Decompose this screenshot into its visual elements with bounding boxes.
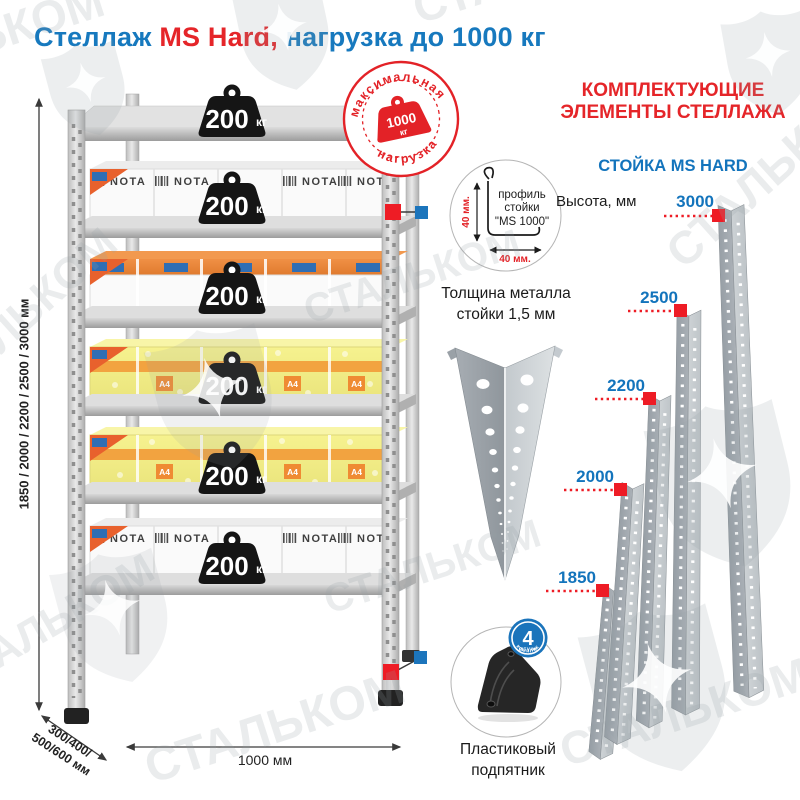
qty-badge: 4 штуки в комплекте — [509, 619, 548, 658]
profile-dim-vertical: 40 мм. — [461, 196, 472, 228]
svg-text:A4: A4 — [287, 467, 298, 477]
components-heading: КОМПЛЕКТУЮЩИЕ ЭЛЕМЕНТЫ СТЕЛЛАЖА — [540, 80, 800, 125]
height-caption: Высота, мм — [556, 193, 636, 210]
box-brand-label: NOTA — [110, 533, 146, 545]
post-height-label-1850: 1850 — [546, 568, 596, 588]
profile-dim-horizontal: 40 мм. — [499, 254, 531, 265]
svg-text:кг: кг — [256, 292, 267, 306]
shelf-illustration: NOTA NOTA NOTA NOTA A4 A4 — [40, 80, 430, 770]
post-height-label-2500: 2500 — [628, 288, 678, 308]
plastic-foot — [378, 690, 403, 706]
post-3000 — [716, 204, 764, 698]
post-height-label-2000: 2000 — [564, 467, 614, 487]
upright-posts — [540, 190, 800, 790]
foot-detail-circle: 4 штуки в комплекте — [448, 612, 573, 742]
box-brand-label: NOTA — [174, 533, 210, 545]
svg-text:A4: A4 — [351, 379, 362, 389]
svg-text:200: 200 — [205, 104, 248, 134]
thickness-label: Толщина металла стойки 1,5 мм — [420, 284, 592, 326]
foot-label: Пластиковый подпятник — [422, 740, 594, 782]
svg-text:A4: A4 — [287, 379, 298, 389]
svg-text:200: 200 — [205, 281, 248, 311]
title-product-name: MS Hard, — [159, 22, 278, 52]
svg-text:кг: кг — [256, 115, 267, 129]
svg-text:кг: кг — [256, 202, 267, 216]
svg-text:200: 200 — [205, 551, 248, 581]
plastic-foot — [402, 650, 420, 662]
post-2500 — [671, 310, 703, 715]
profile-text: профиль — [498, 189, 546, 201]
svg-text:200: 200 — [205, 461, 248, 491]
stand-subheading: СТОЙКА MS HARD — [540, 157, 800, 176]
post-height-label-2200: 2200 — [595, 376, 645, 396]
svg-text:кг: кг — [256, 382, 267, 396]
post-perspective-image — [445, 332, 565, 597]
page-title: Стеллаж MS Hard, нагрузка до 1000 кг — [34, 22, 546, 53]
box-brand-label: NOTA — [174, 176, 210, 188]
shelf-load-badge: 200 кг — [199, 87, 267, 137]
max-load-badge: максимальная нагрузка 1000 кг — [341, 59, 461, 179]
profile-text: "MS 1000" — [495, 216, 549, 228]
box-brand-label: NOTA — [302, 533, 338, 545]
height-dimension-label: 1850 / 2000 / 2200 / 2500 / 3000 мм — [17, 299, 32, 510]
svg-text:200: 200 — [205, 191, 248, 221]
svg-text:кг: кг — [256, 562, 267, 576]
front-post-left — [68, 110, 85, 710]
box-brand-label: NOTA — [302, 176, 338, 188]
post-height-label-3000: 3000 — [664, 192, 714, 212]
svg-text:кг: кг — [256, 472, 267, 486]
box-brand-label: NOTA — [110, 176, 146, 188]
front-post-right — [382, 107, 399, 692]
title-load-text: нагрузка до 1000 кг — [286, 22, 546, 52]
svg-text:A4: A4 — [159, 467, 170, 477]
svg-text:A4: A4 — [159, 379, 170, 389]
plastic-foot — [64, 708, 89, 724]
title-product-type: Стеллаж — [34, 22, 152, 52]
svg-text:200: 200 — [205, 371, 248, 401]
profile-text: стойки — [504, 202, 539, 214]
svg-text:A4: A4 — [351, 467, 362, 477]
post-2200 — [636, 395, 673, 729]
width-dimension-label: 1000 мм — [210, 752, 320, 768]
